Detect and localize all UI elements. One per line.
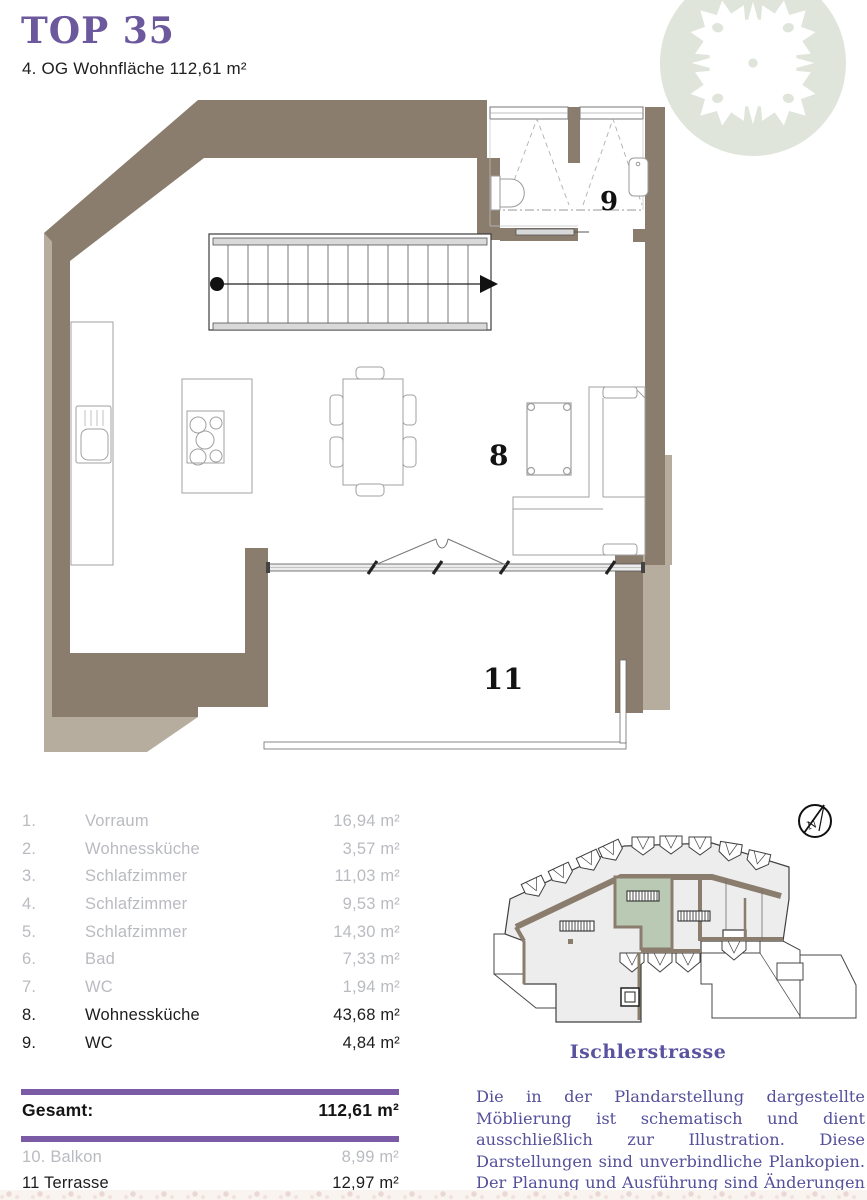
kitchen-sink	[81, 429, 108, 460]
room-area-table: 1.Vorraum16,94 m² 2.Wohnessküche3,57 m² …	[22, 812, 400, 1061]
room-number: 5.	[22, 923, 85, 942]
room-area: 14,30 m²	[333, 923, 400, 942]
room-label-living: 8	[489, 439, 508, 472]
table-row: 2.Wohnessküche3,57 m²	[22, 840, 400, 868]
room-name: Schlafzimmer	[85, 895, 343, 914]
terrace-railing	[264, 660, 626, 749]
table-row: 9.WC4,84 m²	[22, 1034, 400, 1062]
room-area: 7,33 m²	[343, 950, 400, 969]
coffee-table	[527, 403, 571, 475]
room-label-wc: 9	[600, 187, 618, 217]
room-number: 3.	[22, 867, 85, 886]
room-area: 43,68 m²	[333, 1006, 400, 1025]
north-arrow-icon: N	[799, 805, 831, 837]
room-label-terrace: 11	[483, 662, 523, 696]
room-area: 1,94 m²	[343, 978, 400, 997]
room-name: Wohnessküche	[85, 1006, 333, 1025]
table-row: 6.Bad7,33 m²	[22, 950, 400, 978]
floor-plan-drawing: 8 9 11	[0, 0, 867, 790]
room-number: 6.	[22, 950, 85, 969]
bottom-ornament-strip	[0, 1190, 867, 1200]
room-name: WC	[85, 978, 343, 997]
table-row: 8.Wohnessküche43,68 m²	[22, 1006, 400, 1034]
total-divider-top	[21, 1089, 399, 1095]
room-area: 16,94 m²	[333, 812, 400, 831]
disclaimer-text: Die in der Plandarstellung dargestellte …	[476, 1086, 865, 1200]
table-row: 5.Schlafzimmer14,30 m²	[22, 923, 400, 951]
stair-start-dot	[210, 277, 224, 291]
table-row: 4.Schlafzimmer9,53 m²	[22, 895, 400, 923]
table-row: 1.Vorraum16,94 m²	[22, 812, 400, 840]
total-label: Gesamt:	[22, 1100, 93, 1121]
dining-table	[330, 367, 416, 496]
outdoor-area: 8,99 m²	[342, 1148, 399, 1167]
table-row: 3.Schlafzimmer11,03 m²	[22, 867, 400, 895]
staircase	[209, 234, 498, 330]
floorplan-page: TOP 35 4. OG Wohnfläche 112,61 m²	[0, 0, 867, 1200]
room-number: 4.	[22, 895, 85, 914]
kitchen-counter	[71, 322, 113, 565]
table-row: 7.WC1,94 m²	[22, 978, 400, 1006]
room-name: WC	[85, 1034, 343, 1053]
room-name: Schlafzimmer	[85, 867, 335, 886]
total-row: Gesamt: 112,61 m²	[22, 1100, 399, 1121]
room-number: 7.	[22, 978, 85, 997]
sliding-door	[516, 229, 574, 235]
total-divider-bottom	[21, 1136, 399, 1142]
room-area: 3,57 m²	[343, 840, 400, 859]
total-value: 112,61 m²	[318, 1100, 399, 1121]
room-name: Schlafzimmer	[85, 923, 333, 942]
street-label: Ischlerstrasse	[570, 1041, 727, 1063]
outdoor-label: 10. Balkon	[22, 1148, 102, 1167]
room-name: Bad	[85, 950, 343, 969]
room-number: 9.	[22, 1034, 85, 1053]
room-area: 4,84 m²	[343, 1034, 400, 1053]
toilet-cistern	[491, 176, 500, 210]
room-number: 8.	[22, 1006, 85, 1025]
room-number: 1.	[22, 812, 85, 831]
toilet-icon	[500, 179, 524, 207]
room-name: Wohnessküche	[85, 840, 343, 859]
kitchen-island	[182, 379, 252, 493]
room-number: 2.	[22, 840, 85, 859]
outdoor-row-balkon: 10. Balkon 8,99 m²	[22, 1148, 399, 1167]
room-area: 11,03 m²	[335, 867, 401, 886]
room-name: Vorraum	[85, 812, 333, 831]
room-area: 9,53 m²	[343, 895, 400, 914]
site-plan: N Ischlerstrasse	[480, 795, 867, 1085]
elevator	[621, 988, 639, 1006]
